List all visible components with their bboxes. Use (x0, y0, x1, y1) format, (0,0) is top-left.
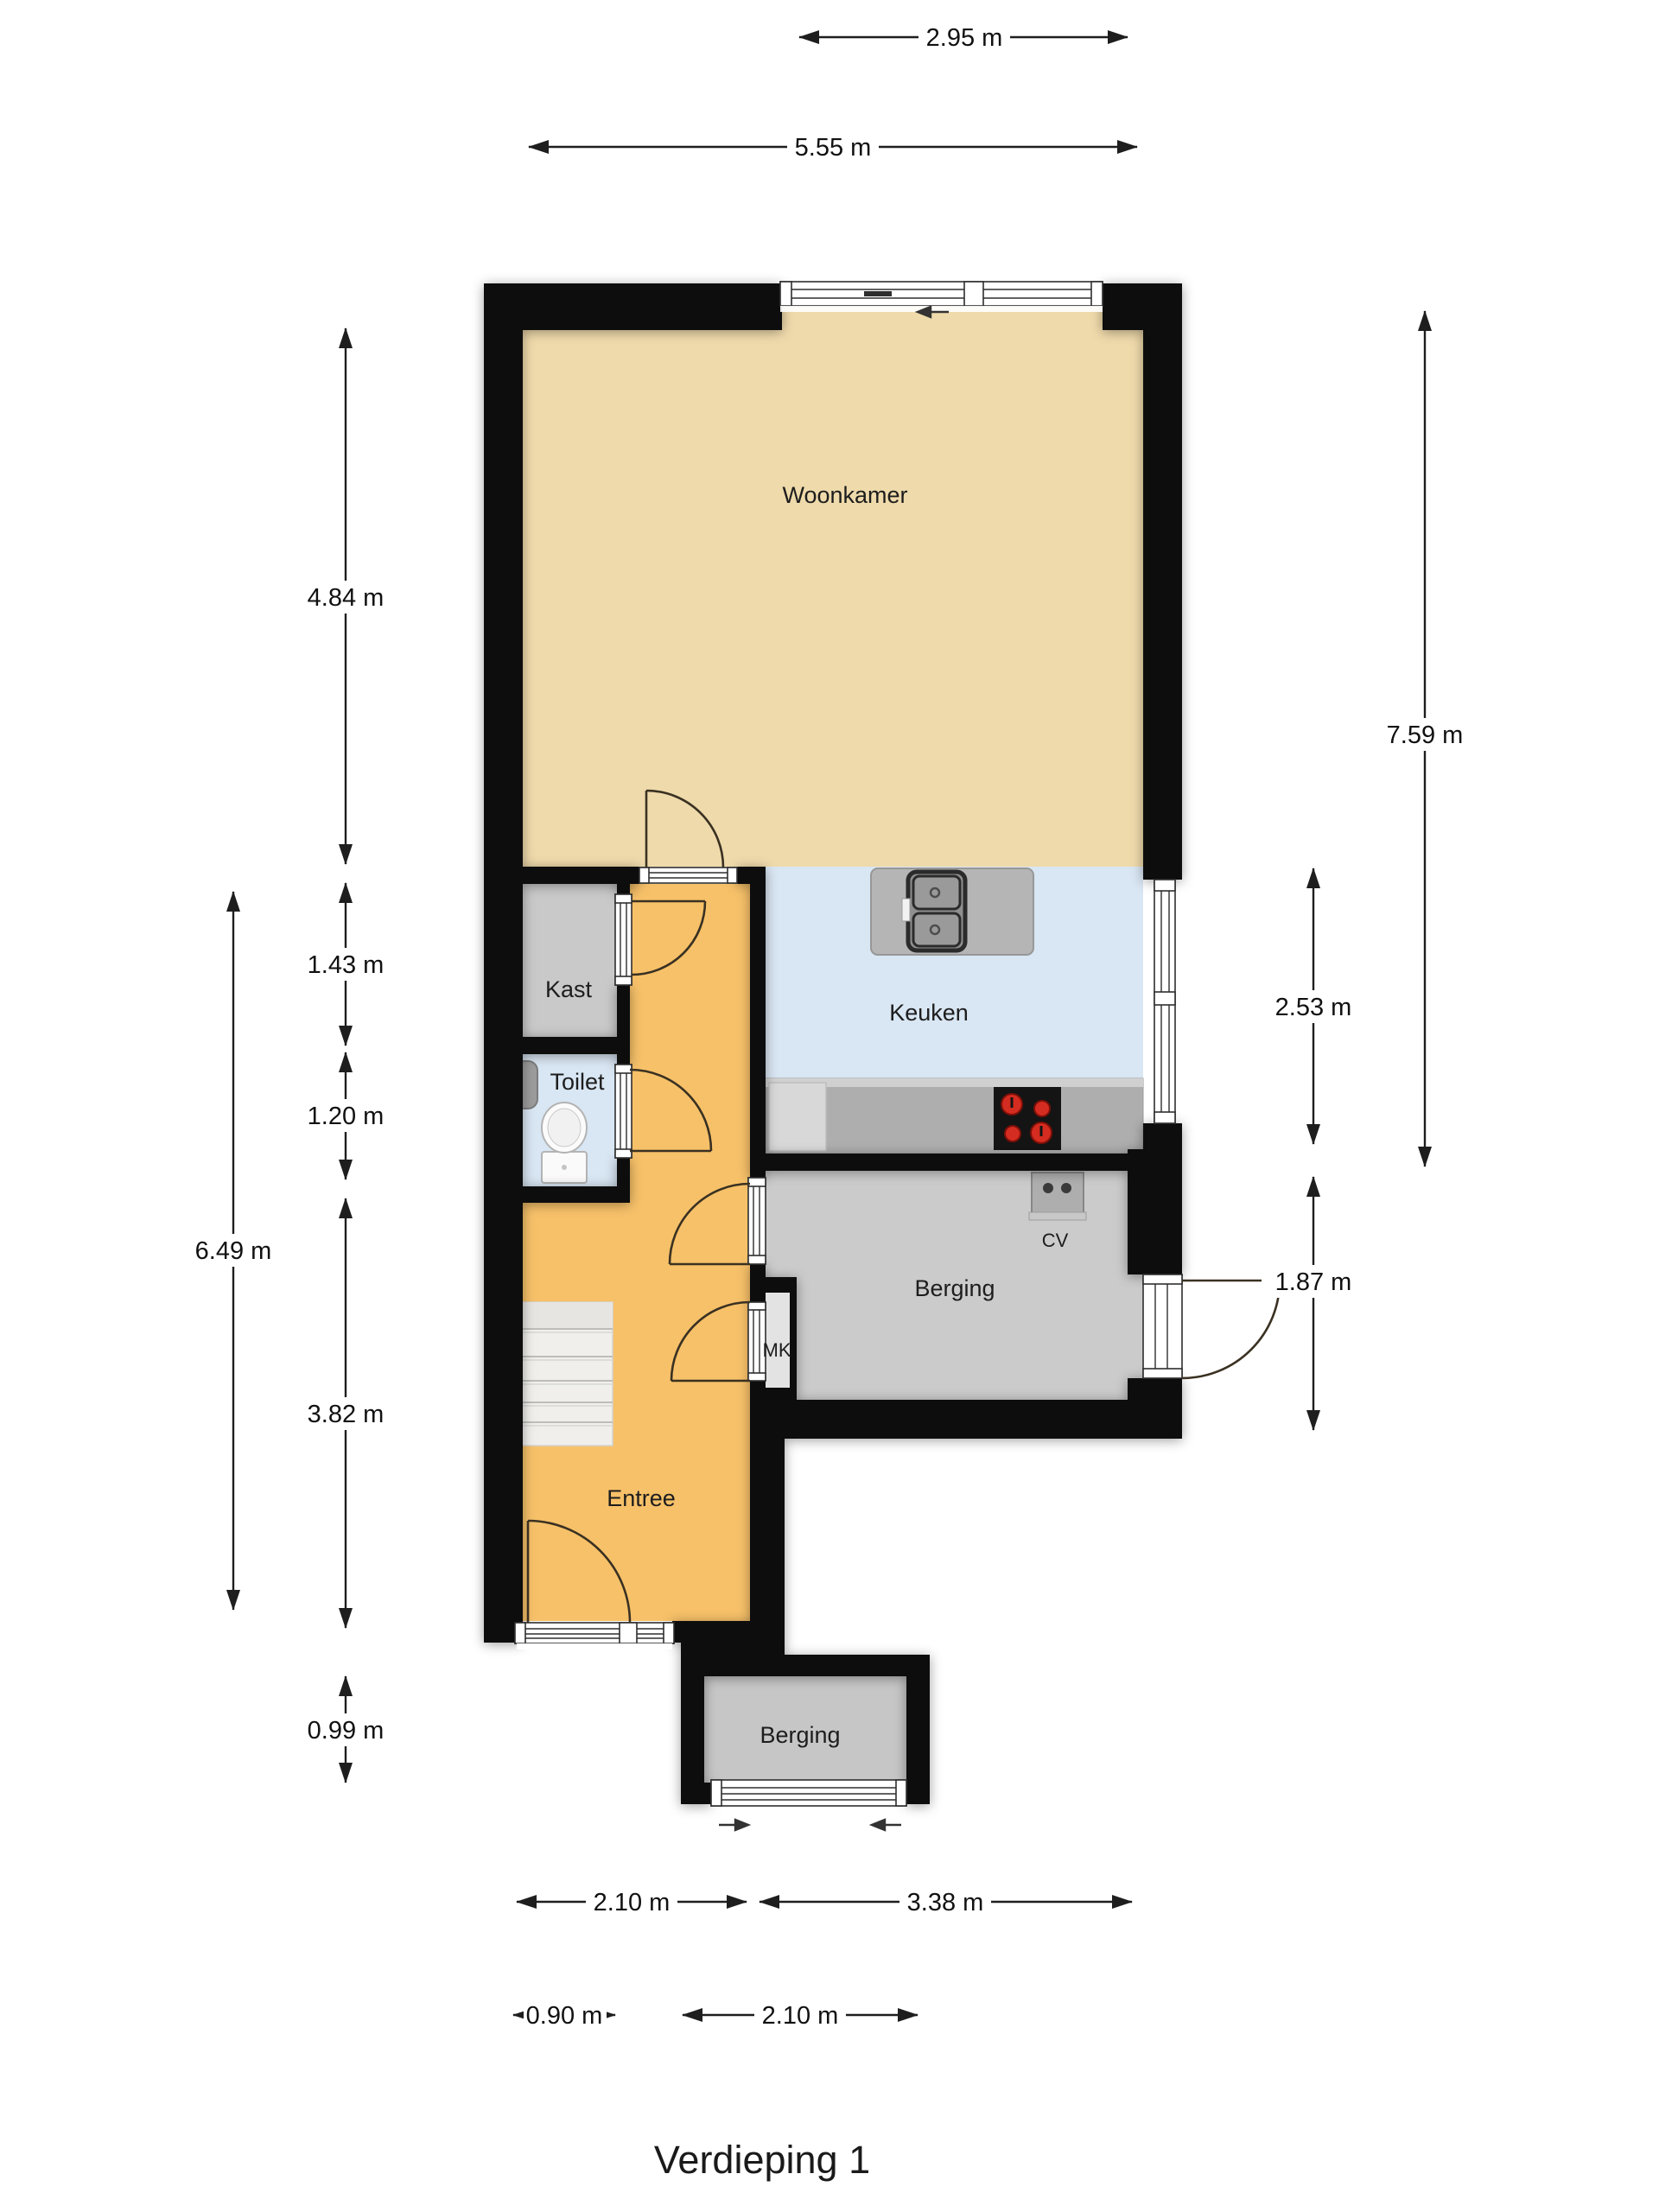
room-label-toilet: Toilet (550, 1069, 605, 1095)
room-berging-floor-edge (1128, 1274, 1143, 1378)
room-label-woonkamer: Woonkamer (782, 482, 907, 508)
wall-berging-ext-north (681, 1655, 930, 1676)
dimension-label: 2.10 m (594, 1889, 671, 1916)
dimension-label: 2.53 m (1275, 994, 1352, 1021)
room-entree-corridor-floor (630, 884, 750, 1203)
wall-corridor-right-stub (750, 1264, 766, 1277)
dimension-label: 1.87 m (1275, 1268, 1352, 1296)
dimension-label: 3.82 m (308, 1401, 385, 1428)
dimension-right-2-53: 2.53 m (1262, 868, 1365, 1144)
toilet-icon (542, 1103, 587, 1183)
page-title: Verdieping 1 (654, 2138, 870, 2182)
wall-berging-ext-south-b (906, 1783, 930, 1804)
door-frame-berging-exterior (1143, 1274, 1182, 1378)
wall-right-upper (1143, 283, 1182, 880)
dimension-left-4-84: 4.84 m (294, 328, 397, 864)
dimension-label: 6.49 m (195, 1237, 272, 1265)
dimension-right-7-59: 7.59 m (1373, 311, 1477, 1166)
wall-corridor-left-a (617, 884, 630, 894)
stairs-icon (522, 1302, 613, 1446)
dimension-bottom-2-10b: 2.10 m (683, 1999, 918, 2031)
cooktop-icon (994, 1087, 1061, 1150)
wall-entree-right-lower (750, 1400, 785, 1643)
fixture-label-cv: CV (1042, 1230, 1069, 1251)
garage-door (711, 1780, 906, 1806)
door-frame-berging (748, 1178, 766, 1264)
wall-berging-ext-south-a (681, 1783, 711, 1804)
window-right (1154, 880, 1175, 1123)
dimension-bottom-3-38: 3.38 m (760, 1886, 1132, 1917)
wall-top-left (484, 283, 782, 330)
wall-corridor-right (750, 884, 766, 1178)
dimension-label: 0.99 m (308, 1717, 385, 1745)
wall-woonkamer-south-a (523, 867, 639, 884)
dimension-label: 4.84 m (308, 584, 385, 612)
dimension-label: 7.59 m (1387, 721, 1464, 749)
wall-kast-toilet (484, 1037, 630, 1054)
room-label-mk: MK (763, 1339, 791, 1361)
room-kast-floor (523, 884, 617, 1037)
room-label-berging: Berging (914, 1275, 995, 1301)
wall-toilet-south (484, 1186, 630, 1203)
floor-plan-drawing: Woonkamer Keuken Kast Toilet Berging MK … (0, 0, 1659, 2212)
dimension-left-6-49: 6.49 m (181, 892, 285, 1610)
dimension-bottom-2-10a: 2.10 m (517, 1886, 747, 1917)
dimension-label: 0.90 m (526, 2002, 603, 2030)
cv-unit-icon (1029, 1173, 1086, 1220)
dimension-left-3-82: 3.82 m (294, 1198, 397, 1628)
wall-left (484, 283, 523, 1643)
room-woonkamer-floor (523, 304, 1143, 867)
dimension-top-5-55: 5.55 m (529, 131, 1137, 162)
door-frame-toilet (615, 1065, 632, 1158)
dimension-left-1-20: 1.20 m (294, 1052, 397, 1179)
window-top (780, 282, 1103, 312)
garage-direction-arrow-left (719, 1820, 748, 1830)
wall-berging-ext-west (681, 1655, 704, 1804)
door-frame-woonkamer (639, 868, 737, 883)
dimension-label: 1.20 m (308, 1103, 385, 1130)
room-label-berging-exterior: Berging (760, 1722, 840, 1748)
floor-plan-page: Woonkamer Keuken Kast Toilet Berging MK … (0, 0, 1659, 2212)
room-label-keuken: Keuken (889, 1000, 969, 1026)
garage-direction-arrow-right (872, 1820, 901, 1830)
dimension-top-2-95: 2.95 m (799, 22, 1128, 53)
dimension-label: 5.55 m (795, 134, 872, 162)
door-frame-front (515, 1623, 674, 1649)
kitchen-counter-icon (766, 1078, 1143, 1154)
room-label-kast: Kast (545, 976, 593, 1002)
dimension-label: 2.10 m (762, 2002, 839, 2030)
dimension-left-1-43: 1.43 m (294, 883, 397, 1046)
kitchen-island-icon (871, 868, 1033, 955)
wall-woonkamer-south-b (737, 867, 766, 884)
wall-right-below-window (1143, 1123, 1182, 1149)
dimension-bottom-0-90: 0.90 m (513, 1999, 615, 2031)
dimension-label: 2.95 m (926, 24, 1003, 52)
wall-berging-ext-east (906, 1655, 930, 1804)
dimension-label: 1.43 m (308, 951, 385, 979)
dimension-label: 3.38 m (907, 1889, 984, 1916)
wall-keuken-berging (750, 1154, 1182, 1171)
wall-berging-south (750, 1400, 1182, 1439)
room-label-entree: Entree (607, 1485, 676, 1511)
door-frame-kast (615, 894, 632, 985)
dimension-left-0-99: 0.99 m (294, 1676, 397, 1783)
